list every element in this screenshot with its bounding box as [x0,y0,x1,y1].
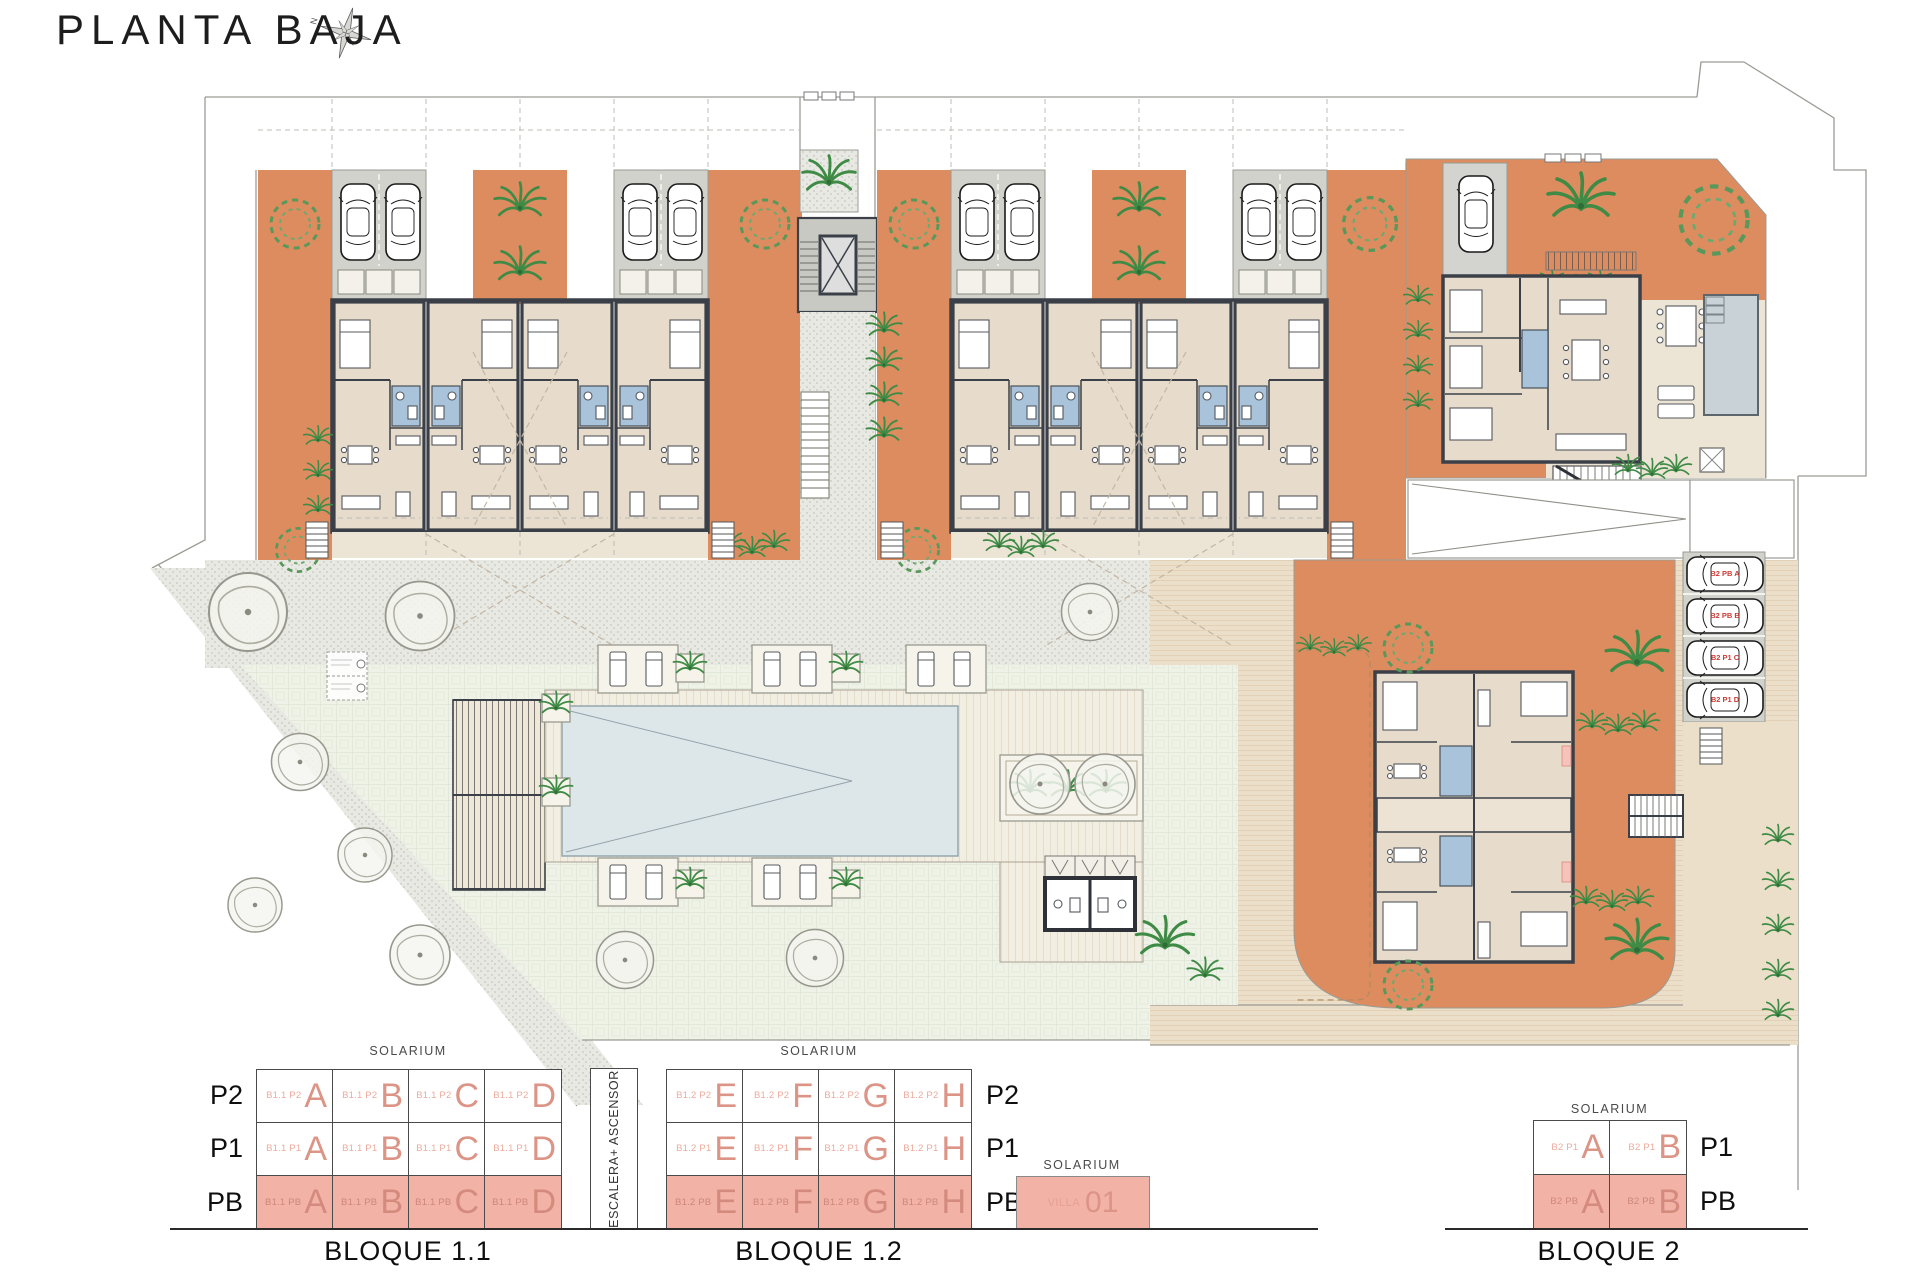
parking-label: B2 PB A [1710,569,1740,578]
legend-unit-cell: B1.1 P1D [485,1123,561,1176]
villa-01-plan [1404,154,1766,492]
legend-unit-cell: B1.2 P2G [819,1070,895,1123]
legend-unit-cell: B1.1 PBC [409,1176,485,1229]
solarium-label-bloque2: SOLARIUM [1533,1102,1686,1116]
parking-label: B2 PB B [1710,611,1740,620]
legend-table-bloque2: B2 P1A B2 P1B B2 PBA B2 PBB [1533,1120,1687,1230]
solarium-label-bloque12: SOLARIUM [666,1044,972,1058]
legend-unit-cell: B1.1 PBB [333,1176,409,1229]
bloque2-title: BLOQUE 2 [1459,1236,1759,1267]
legend-unit-cell: B1.1 P1A [257,1123,333,1176]
pergola [453,700,545,890]
escalera-ascensor-box: ESCALERA+ ASCENSOR [590,1068,638,1230]
legend-unit-cell: B1.2 PBH [895,1176,971,1229]
floor-label-pb: PB [168,1187,243,1218]
villa-building [1443,276,1640,462]
floor-label-p1: P1 [168,1133,243,1164]
swimming-pool [562,706,958,856]
legend-unit-cell: B2 PBA [1534,1175,1610,1229]
floor-label-pb: PB [1700,1186,1736,1217]
bloque12-title: BLOQUE 1.2 [669,1236,969,1267]
villa-legend-box: VILLA 01 [1016,1176,1150,1230]
outdoor-staircase [801,392,829,498]
pool-wc-block [1045,856,1135,930]
legend-table-bloque12: B1.2 P2E B1.2 P2F B1.2 P2G B1.2 P2H B1.2… [666,1069,972,1230]
legend-unit-cell: B1.2 P1F [743,1123,819,1176]
legend-unit-cell: B1.2 P1H [895,1123,971,1176]
annotation-note-box [327,652,367,700]
legend-unit-cell: B1.1 PBA [257,1176,333,1229]
parking-label: B2 P1 D [1711,695,1740,704]
palm-planter-strip [1000,754,1143,821]
legend-unit-cell: B2 P1B [1610,1121,1686,1175]
bloque-2-plan [1294,560,1683,1009]
parking-label: B2 P1 C [1711,653,1740,662]
floor-label-p1: P1 [1700,1132,1733,1163]
central-corridor [798,150,877,560]
bloque11-title: BLOQUE 1.1 [258,1236,558,1267]
legend-unit-cell: B1.2 P2E [667,1070,743,1123]
legend-ground-line-right [1445,1228,1808,1230]
legend-unit-cell: B2 P1A [1534,1121,1610,1175]
elevator-shaft [820,236,856,294]
legend-unit-cell: B2 PBB [1610,1175,1686,1229]
bloque-2-stairs [1629,795,1683,837]
legend-unit-cell: B1.2 PBE [667,1176,743,1229]
legend-ground-line-left [170,1228,1318,1230]
bloque-2-building [1375,672,1573,962]
legend-unit-cell: B1.1 PBD [485,1176,561,1229]
floor-label-p2: P2 [986,1080,1019,1111]
solarium-label-bloque11: SOLARIUM [256,1044,560,1058]
legend-unit-cell: B1.2 P2H [895,1070,971,1123]
legend-unit-cell: B1.1 P1C [409,1123,485,1176]
legend-unit-cell: B1.1 P2A [257,1070,333,1123]
legend-unit-cell: B1.2 P1E [667,1123,743,1176]
legend-unit-cell: B1.1 P2C [409,1070,485,1123]
legend-unit-cell: B1.2 PBG [819,1176,895,1229]
legend-unit-cell: B1.1 P2B [333,1070,409,1123]
solarium-label-villa: SOLARIUM [1016,1158,1148,1172]
driveway-ramp [1408,480,1794,558]
floor-label-p2: P2 [168,1080,243,1111]
page-title: PLANTA BAJA [56,6,408,54]
villa-pool [1704,295,1758,415]
legend-unit-cell: B1.2 P1G [819,1123,895,1176]
legend-table-bloque11: B1.1 P2A B1.1 P2B B1.1 P2C B1.1 P2D B1.1… [256,1069,562,1230]
legend-unit-cell: B1.2 PBF [743,1176,819,1229]
floor-plan-sheet: B2 PB A B2 PB B B2 P1 C B2 P1 D [0,0,1920,1280]
floor-label-p1: P1 [986,1133,1019,1164]
legend-unit-cell: B1.1 P1B [333,1123,409,1176]
legend-unit-cell: B1.1 P2D [485,1070,561,1123]
legend-unit-cell: B1.2 P2F [743,1070,819,1123]
